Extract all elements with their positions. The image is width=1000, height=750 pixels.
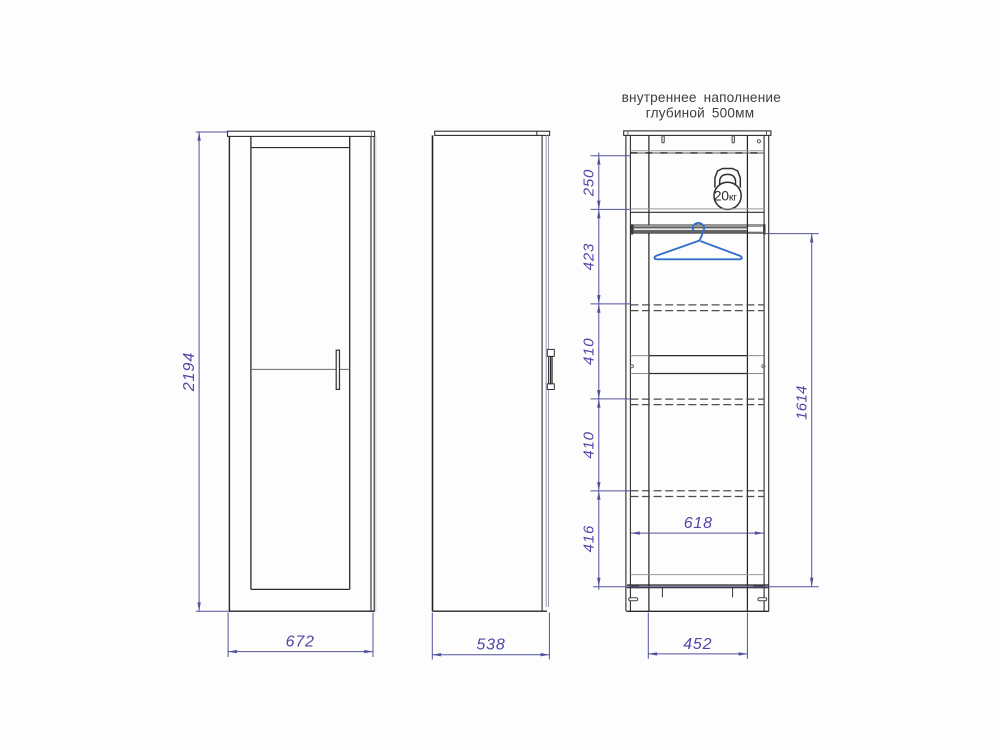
svg-text:глубиной 500мм: глубиной 500мм [646, 106, 755, 121]
svg-text:416: 416 [581, 525, 598, 552]
svg-text:452: 452 [683, 636, 712, 653]
svg-text:внутреннее наполнение: внутреннее наполнение [622, 90, 781, 105]
svg-text:423: 423 [581, 243, 598, 270]
svg-text:410: 410 [581, 431, 598, 458]
svg-text:410: 410 [581, 338, 598, 365]
svg-text:2194: 2194 [181, 352, 198, 393]
svg-text:1614: 1614 [794, 385, 811, 420]
svg-text:618: 618 [684, 515, 713, 532]
svg-text:250: 250 [581, 169, 598, 197]
svg-text:672: 672 [286, 634, 315, 651]
svg-text:538: 538 [476, 637, 505, 654]
